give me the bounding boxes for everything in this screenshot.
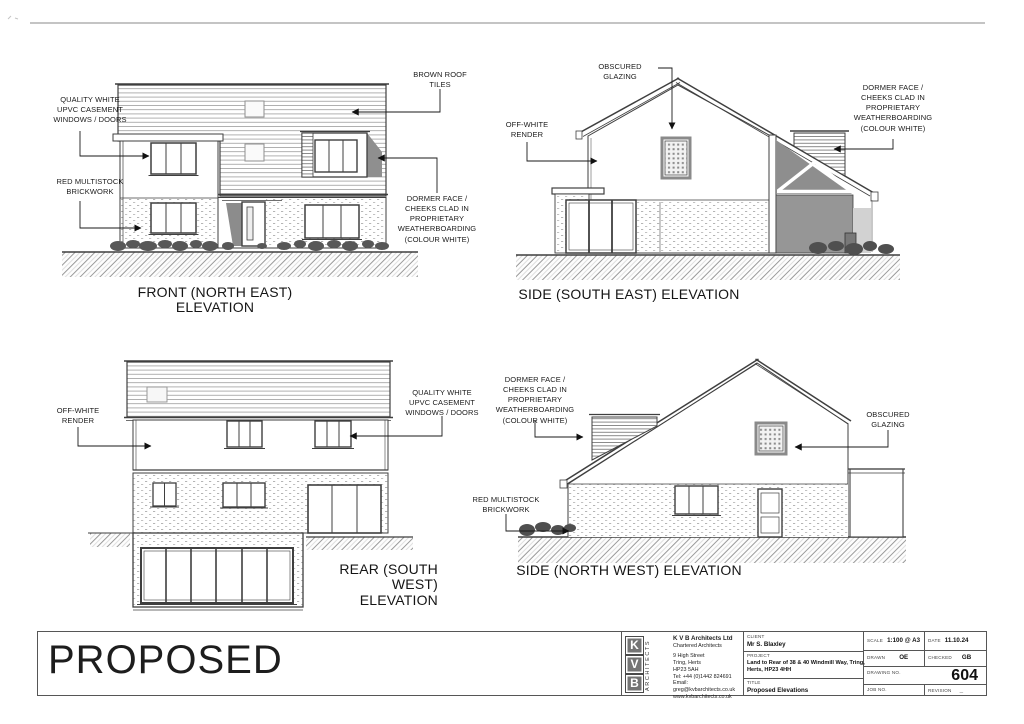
scale-cell: SCALE 1:100 @ A3 [867,637,920,644]
caption-rear-sw: REAR (SOUTH WEST) ELEVATION [318,562,438,608]
rear-window-centre [220,483,268,508]
drawn-label: DRAWN [867,655,885,660]
divider [621,632,622,695]
front-window-ground-right [302,205,362,240]
checked-value: GB [962,654,971,661]
client-value: Mr S. Blaxley [747,641,786,648]
annotation-nw-brickwork: RED MULTISTOCK BRICKWORK [466,495,546,515]
firm-address-1: 9 High Street [673,653,741,660]
firm-website: www.kvbarchitects.co.uk [673,694,741,701]
caption-side-se: SIDE (SOUTH EAST) ELEVATION [514,287,744,302]
title-value: Proposed Elevations [747,687,808,694]
annotation-se-render: OFF-WHITE RENDER [492,120,562,140]
logo-letter-k: K [625,636,644,655]
front-bay-roof [113,134,223,141]
annotation-nw-obscured-glazing: OBSCURED GLAZING [854,410,922,430]
revision-cell: REVISION _ [928,687,963,694]
annotation-se-dormer: DORMER FACE / CHEEKS CLAD IN PROPRIETARY… [849,83,937,134]
front-dormer [300,132,382,178]
annotation-nw-dormer: DORMER FACE / CHEEKS CLAD IN PROPRIETARY… [491,375,579,426]
nw-door [758,489,782,537]
drawing-no-value: 604 [951,667,978,685]
annotation-front-dormer: DORMER FACE / CHEEKS CLAD IN PROPRIETARY… [393,194,481,245]
firm-address-2: Tring, Herts [673,660,741,667]
scale-label: SCALE [867,638,883,643]
drawing-no-label: DRAWING NO. [867,670,901,675]
firm-tel: Tel: +44 (0)1442 824691 [673,674,741,681]
scale-value: 1:100 @ A3 [887,637,920,644]
front-door [242,202,265,246]
revision-label: REVISION [928,688,952,693]
annotation-se-obscured-glazing: OBSCURED GLAZING [585,62,655,82]
caption-front-ne: FRONT (NORTH EAST) ELEVATION [100,285,330,316]
date-label: DATE [928,638,941,643]
nw-window-ground [672,486,721,516]
annotation-front-windows: QUALITY WHITE UPVC CASEMENT WINDOWS / DO… [40,95,140,125]
front-window-bay-lower [149,203,199,235]
rear-window-upper-left [224,421,265,449]
divider [863,650,986,651]
logo-architects-text: ARCHITECTS [645,636,651,691]
title-label: TITLE [747,680,761,685]
proposed-heading: PROPOSED [48,638,283,683]
firm-address-3: HP23 5AH [673,667,741,674]
divider [743,678,863,679]
se-obscured-window [662,138,690,178]
date-value: 11.10.24 [945,637,969,644]
drawn-cell: DRAWN OE [867,654,908,661]
rear-bifold-doors [137,548,297,605]
drawn-value: OE [899,654,908,661]
annotation-brown-roof-tiles: BROWN ROOF TILES [398,70,482,90]
rear-patio-door [308,485,381,533]
project-value: Land to Rear of 38 & 40 Windmill Way, Tr… [747,660,865,673]
rear-window-small [150,483,179,507]
divider [924,632,925,666]
job-no-cell: JOB NO. [867,687,891,692]
checked-label: CHECKED [928,655,952,660]
checked-cell: CHECKED GB [928,654,971,661]
rear-window-upper-right [312,421,354,449]
drawing-sheet: BROWN ROOF TILES QUALITY WHITE UPVC CASE… [0,0,1024,724]
annotation-front-brickwork: RED MULTISTOCK BRICKWORK [40,177,140,197]
client-label: CLIENT [747,634,765,639]
front-window-bay-upper [149,143,199,176]
annotation-rear-windows: QUALITY WHITE UPVC CASEMENT WINDOWS / DO… [404,388,480,418]
firm-name: K V B Architects Ltd [673,635,741,643]
logo-letter-v: V [625,655,644,674]
side-se-drawing [516,78,900,280]
nw-extension [848,469,905,537]
logo-letter-b: B [625,674,644,693]
sheet-border-line [8,16,985,23]
title-block: PROPOSED K V B ARCHITECTS K V B Architec… [37,631,987,696]
revision-value: _ [960,687,963,694]
firm-tagline: Chartered Architects [673,643,741,650]
annotation-rear-render: OFF-WHITE RENDER [43,406,113,426]
rear-roof-window [147,387,167,402]
caption-side-nw: SIDE (NORTH WEST) ELEVATION [514,563,744,578]
divider [743,632,744,695]
nw-obscured-window [756,423,786,454]
firm-details: K V B Architects Ltd Chartered Architect… [673,635,741,701]
date-cell: DATE 11.10.24 [928,637,968,644]
divider [924,684,925,695]
divider [743,651,863,652]
job-no-label: JOB NO. [867,687,887,692]
firm-email: Email: greg@kvbarchitects.co.uk [673,680,741,694]
nw-bushes [519,522,576,536]
project-label: PROJECT [747,653,770,658]
